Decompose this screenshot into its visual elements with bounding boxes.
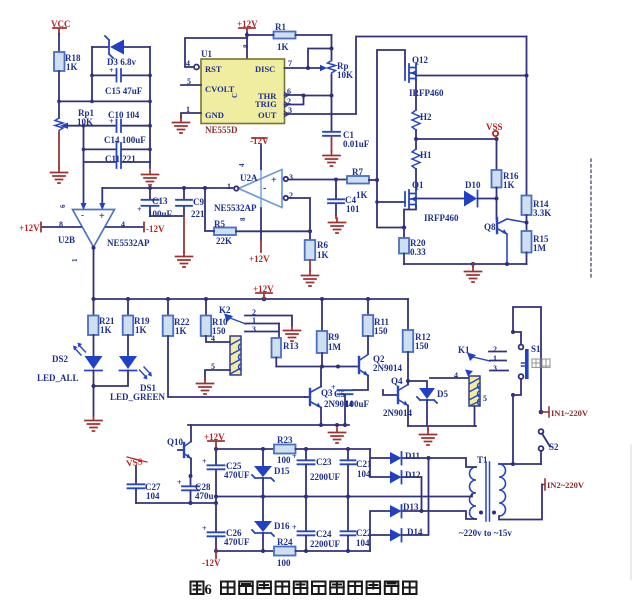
svg-text:IRFP460: IRFP460 [409, 88, 444, 98]
svg-text:1: 1 [227, 182, 231, 191]
svg-text:D16: D16 [274, 521, 290, 531]
svg-text:+12V: +12V [237, 19, 258, 29]
svg-text:2N9014: 2N9014 [324, 399, 353, 409]
svg-text:Q4: Q4 [391, 376, 403, 386]
svg-text:+: + [99, 211, 105, 222]
svg-text:+: + [292, 452, 297, 461]
svg-text:D12: D12 [405, 470, 421, 480]
svg-text:100: 100 [277, 455, 291, 465]
svg-text:LED_ALL: LED_ALL [37, 373, 79, 383]
svg-text:R13: R13 [283, 341, 299, 351]
svg-text:C9: C9 [193, 197, 204, 207]
svg-text:3.3K: 3.3K [533, 208, 551, 218]
svg-text:10K: 10K [337, 70, 353, 80]
svg-text:470UF: 470UF [224, 537, 250, 547]
svg-text:1: 1 [493, 354, 497, 363]
svg-text:1M: 1M [328, 342, 342, 352]
svg-text:2200UF: 2200UF [310, 472, 340, 482]
svg-text:C13: C13 [152, 196, 168, 206]
svg-text:2: 2 [493, 345, 497, 354]
svg-text:C22: C22 [356, 528, 372, 538]
svg-text:LED_GREEN: LED_GREEN [110, 392, 166, 402]
svg-text:U2A: U2A [240, 173, 258, 183]
svg-text:-12V: -12V [202, 558, 221, 568]
svg-text:D15: D15 [274, 466, 290, 476]
svg-text:D5: D5 [437, 389, 448, 399]
svg-text:4: 4 [454, 371, 458, 380]
svg-text:7: 7 [288, 59, 292, 68]
svg-text:470u: 470u [195, 491, 214, 501]
svg-text:+12V: +12V [19, 223, 40, 233]
svg-text:NE5532AP: NE5532AP [214, 203, 257, 213]
svg-text:H2: H2 [420, 112, 432, 122]
svg-text:S1: S1 [531, 344, 541, 354]
svg-text:R7: R7 [352, 167, 363, 177]
svg-text:C5: C5 [334, 389, 345, 399]
svg-text:+: + [292, 523, 297, 532]
svg-text:2N9014: 2N9014 [373, 363, 402, 373]
svg-text:S2: S2 [549, 442, 559, 452]
svg-text:1K: 1K [175, 326, 187, 336]
svg-text:100: 100 [277, 558, 291, 568]
svg-text:101: 101 [346, 204, 360, 214]
svg-text:3: 3 [493, 364, 497, 373]
svg-text:D14: D14 [407, 527, 423, 537]
svg-text:1K: 1K [277, 42, 289, 52]
svg-text:1M: 1M [533, 243, 547, 253]
svg-text:0.01uF: 0.01uF [343, 139, 370, 149]
svg-text:Q3: Q3 [321, 388, 333, 398]
svg-text:470UF: 470UF [224, 470, 250, 480]
svg-text:C14 100uF: C14 100uF [104, 135, 146, 145]
svg-text:100uF: 100uF [148, 209, 173, 219]
svg-text:C15 47uF: C15 47uF [105, 86, 143, 96]
svg-text:+: + [137, 205, 142, 214]
svg-text:IRFP460: IRFP460 [424, 213, 459, 223]
svg-text:DISC: DISC [255, 64, 275, 74]
svg-text:1K: 1K [317, 250, 329, 260]
svg-text:1: 1 [71, 258, 79, 262]
svg-text:R23: R23 [277, 435, 293, 445]
svg-text:8: 8 [239, 217, 247, 221]
svg-text:5: 5 [187, 77, 191, 86]
svg-text:K2: K2 [219, 305, 231, 315]
svg-text:1K: 1K [100, 325, 112, 335]
svg-text:-12V: -12V [250, 136, 269, 146]
svg-text:6: 6 [59, 204, 67, 208]
svg-text:IN1~220V: IN1~220V [551, 408, 589, 418]
svg-text:Q8: Q8 [484, 222, 496, 232]
svg-text:CVOLT: CVOLT [205, 84, 235, 94]
svg-text:Q10: Q10 [167, 437, 184, 447]
svg-text:R24: R24 [277, 537, 293, 547]
svg-text:+: + [109, 117, 114, 126]
svg-text:1: 1 [186, 105, 190, 114]
svg-text:C24: C24 [316, 529, 332, 539]
svg-text:C21: C21 [356, 459, 372, 469]
svg-text:~220v to ~15v: ~220v to ~15v [459, 528, 512, 538]
svg-text:104: 104 [357, 469, 371, 479]
svg-text:104: 104 [146, 491, 160, 501]
svg-text:D13: D13 [403, 502, 419, 512]
svg-text:0.33: 0.33 [410, 247, 426, 257]
svg-text:R5: R5 [214, 219, 225, 229]
svg-text:150: 150 [415, 341, 429, 351]
svg-text:22K: 22K [216, 236, 232, 246]
svg-text:3: 3 [289, 173, 293, 182]
svg-text:R1: R1 [275, 22, 286, 32]
svg-text:NE555D: NE555D [205, 125, 238, 135]
svg-text:R6: R6 [317, 240, 328, 250]
svg-text:Q1: Q1 [412, 180, 424, 190]
svg-text:D11: D11 [405, 451, 421, 461]
svg-text:R9: R9 [328, 332, 339, 342]
svg-text:2N9014: 2N9014 [383, 408, 412, 418]
svg-text:+: + [177, 478, 182, 487]
svg-text:+: + [202, 524, 207, 533]
svg-text:-12V: -12V [146, 224, 165, 234]
svg-text:C: C [231, 93, 239, 98]
svg-text:4: 4 [211, 334, 215, 343]
svg-text:NE5532AP: NE5532AP [107, 238, 150, 248]
svg-text:U1: U1 [201, 49, 212, 59]
svg-text:6: 6 [205, 582, 212, 598]
svg-text:2200UF: 2200UF [310, 539, 340, 549]
svg-text:-: - [263, 183, 266, 194]
svg-text:150: 150 [374, 326, 388, 336]
svg-text:1K: 1K [66, 62, 78, 72]
svg-text:104: 104 [356, 538, 370, 548]
svg-text:1: 1 [252, 316, 256, 325]
svg-text:+: + [109, 66, 114, 75]
svg-text:DS2: DS2 [52, 354, 69, 364]
svg-text:RST: RST [205, 64, 222, 74]
svg-text:GND: GND [205, 110, 224, 120]
svg-text:1K: 1K [135, 325, 147, 335]
svg-text:4: 4 [238, 163, 246, 167]
svg-text:5: 5 [483, 394, 487, 403]
svg-text:+: + [271, 175, 277, 186]
svg-text:C23: C23 [316, 457, 332, 467]
svg-text:8: 8 [242, 44, 250, 48]
svg-text:C11 221: C11 221 [105, 154, 136, 164]
svg-text:IN2~220V: IN2~220V [547, 480, 585, 490]
svg-text:+12V: +12V [204, 432, 225, 442]
svg-text:TRIG: TRIG [255, 99, 277, 109]
svg-text:221: 221 [191, 209, 205, 219]
svg-text:D10: D10 [465, 180, 481, 190]
svg-text:OUT: OUT [258, 110, 277, 120]
svg-text:1K: 1K [356, 190, 368, 200]
svg-text:+12V: +12V [253, 284, 274, 294]
svg-text:-: - [81, 210, 84, 220]
svg-text:1K: 1K [503, 180, 515, 190]
svg-text:Q12: Q12 [412, 55, 429, 65]
svg-text:H1: H1 [420, 150, 432, 160]
svg-text:4: 4 [186, 59, 190, 68]
svg-text:+: + [202, 457, 207, 466]
svg-text:5: 5 [211, 362, 215, 371]
svg-text:3: 3 [252, 325, 256, 334]
svg-text:U2B: U2B [58, 235, 75, 245]
svg-text:+12V: +12V [249, 254, 270, 264]
